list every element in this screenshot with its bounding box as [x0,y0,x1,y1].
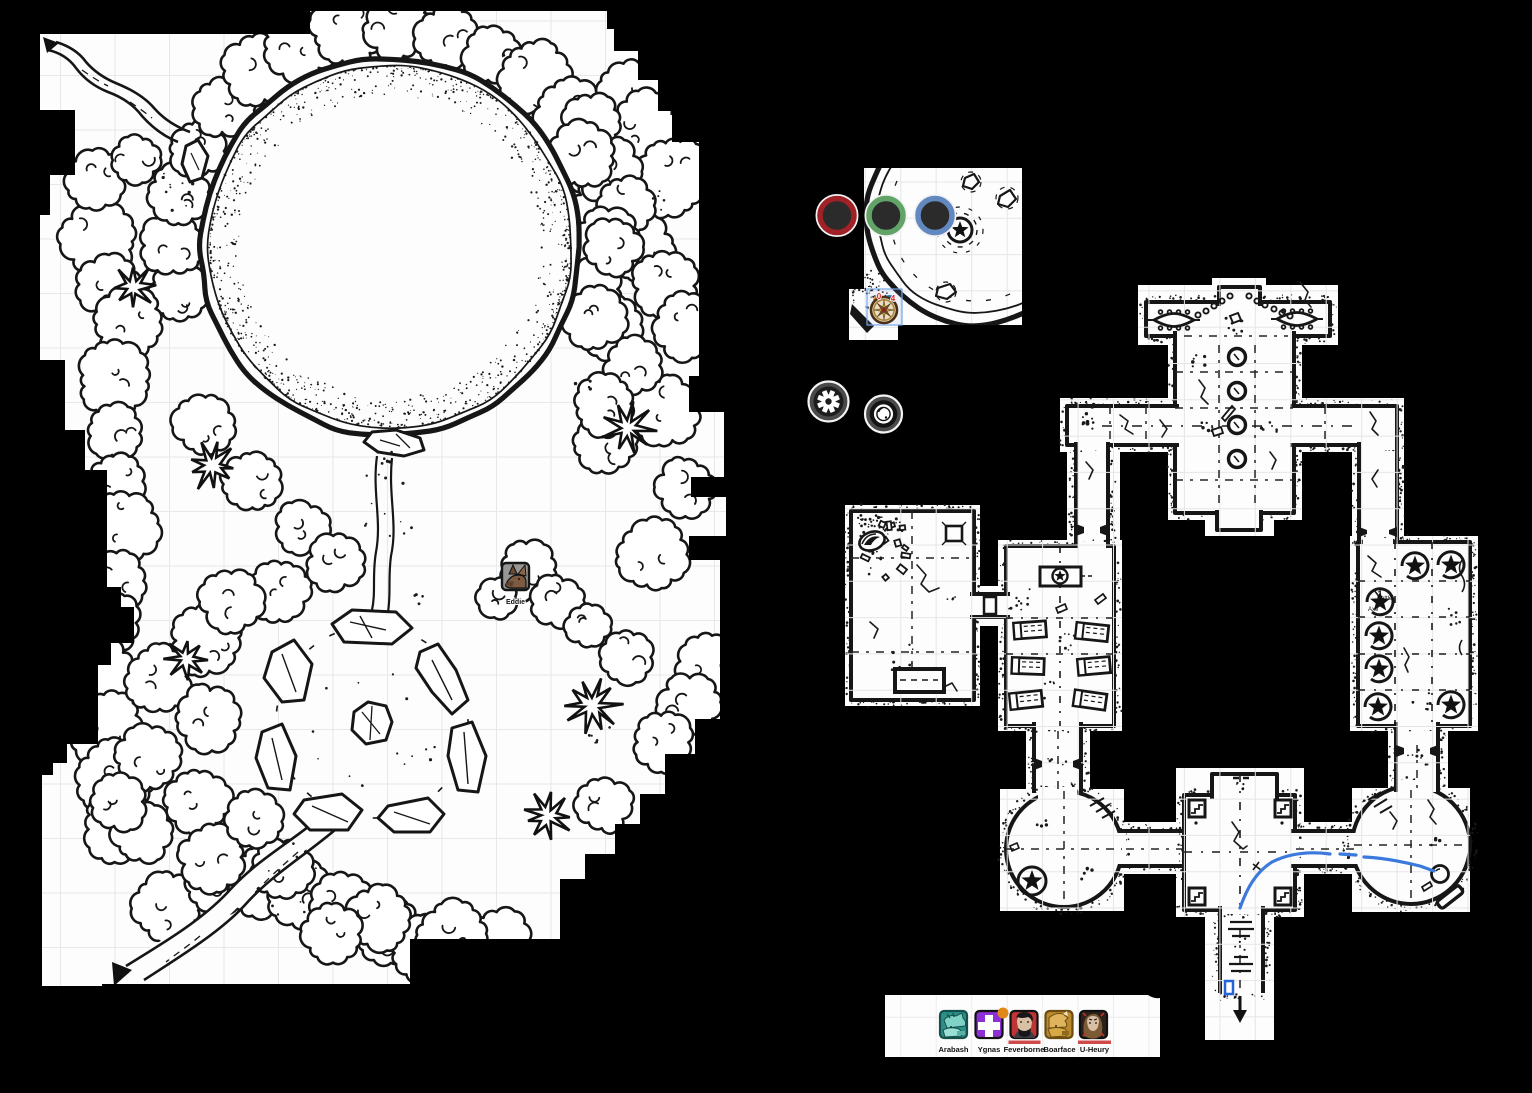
svg-text:0: 0 [877,292,882,301]
svg-text:Boarface: Boarface [1043,1045,1075,1054]
svg-text:Arabash: Arabash [938,1045,968,1054]
svg-text:Ygnas: Ygnas [978,1045,1001,1054]
svg-text:Eddie: Eddie [506,599,525,606]
svg-text:U-Heury: U-Heury [1080,1045,1110,1054]
svg-text:Feverborne: Feverborne [1004,1045,1045,1054]
svg-text:Axe: Axe [1368,607,1379,613]
svg-text:4: 4 [891,294,896,303]
svg-text:Battle: Battle [1377,596,1393,602]
